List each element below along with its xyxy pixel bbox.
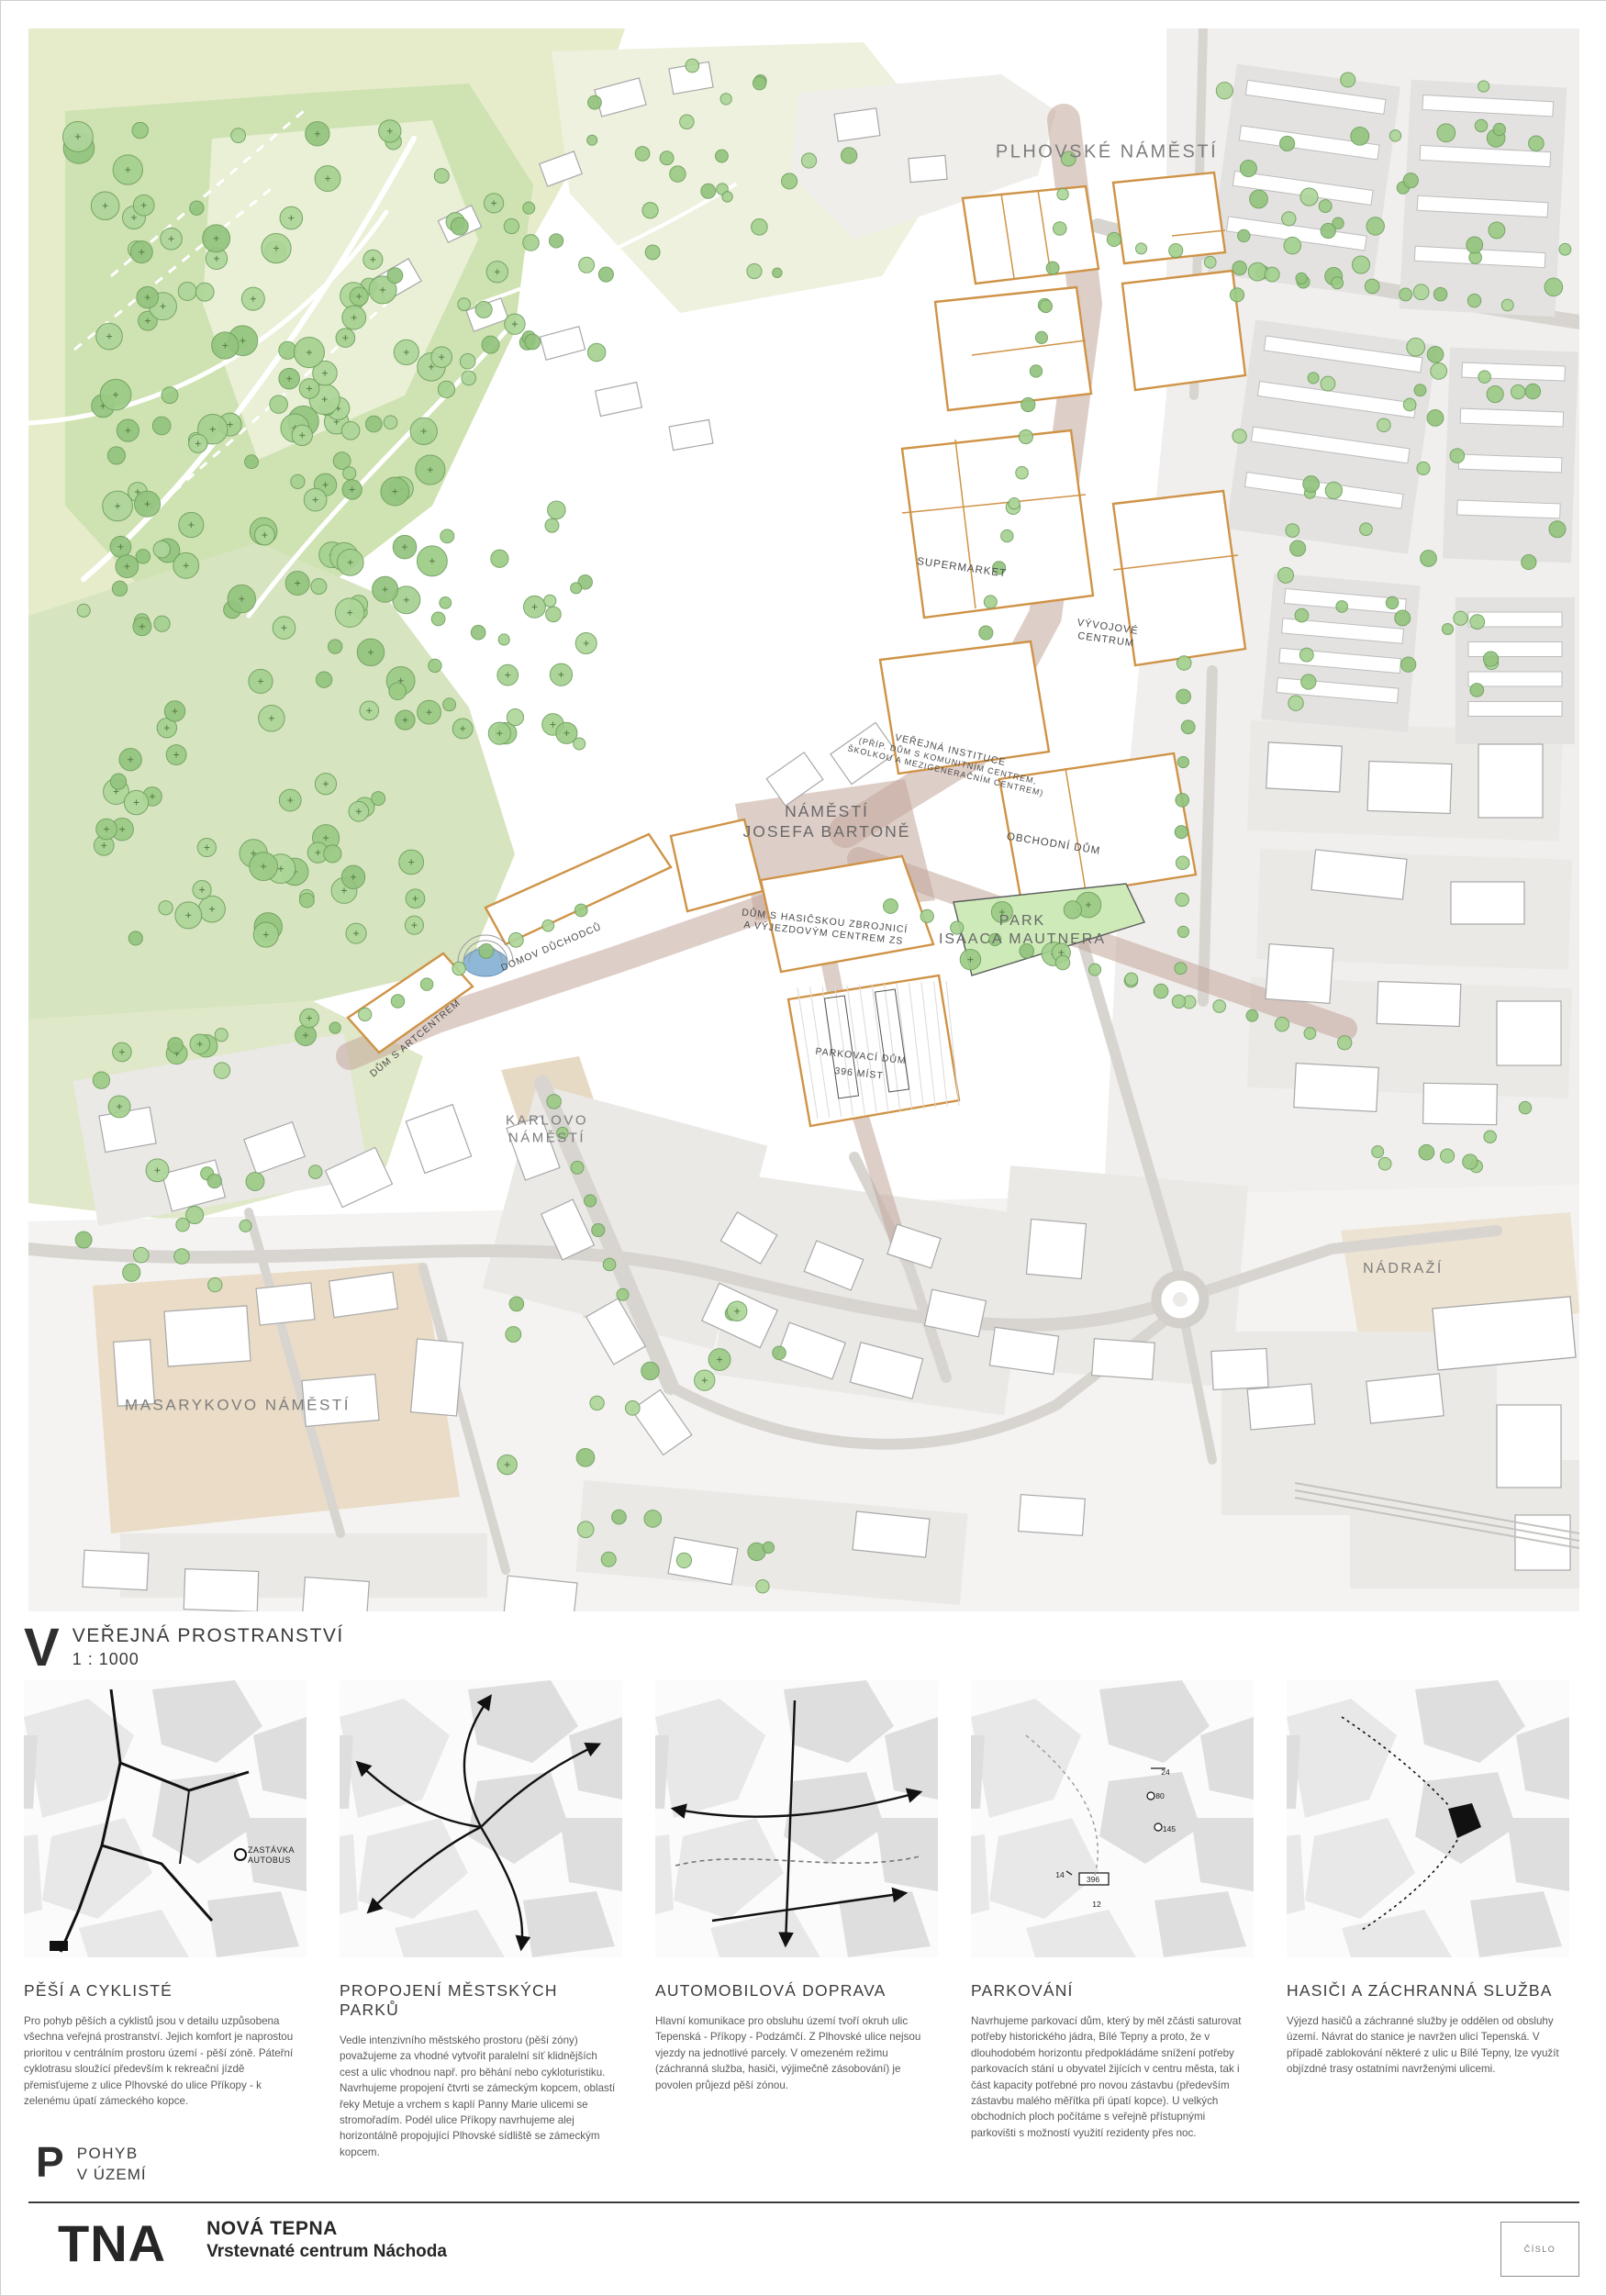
parking-count-24: 24 (1161, 1767, 1169, 1777)
parking-count-396: 396 (1087, 1875, 1099, 1884)
thumbnail-2-svg (340, 1680, 622, 1957)
parking-count-145: 145 (1163, 1824, 1176, 1833)
thumbnail-hasici (1287, 1680, 1569, 1957)
panel-4-body: Navrhujeme parkovací dům, který by měl z… (971, 2013, 1248, 2141)
project-name: NOVÁ TEPNA (206, 2218, 447, 2240)
section-pohyb-v-uzemi: P POHYB V ÚZEMÍ (36, 2145, 147, 2184)
masterplan-map (28, 28, 1579, 1611)
section-p-line2: V ÚZEMÍ (77, 2166, 147, 2184)
panel-parkovani: PARKOVÁNÍ Navrhujeme parkovací dům, kter… (971, 1981, 1248, 2141)
parking-count-14: 14 (1055, 1870, 1064, 1879)
panel-1-heading: PĚŠÍ A CYKLISTÉ (24, 1981, 301, 2001)
panel-5-heading: HASIČI A ZÁCHRANNÁ SLUŽBA (1287, 1981, 1564, 2001)
section-verejna-prostranstvi: V VEŘEJNÁ PROSTRANSTVÍ 1 : 1000 (24, 1625, 344, 1670)
project-subtitle: Vrstevnaté centrum Náchoda (206, 2242, 447, 2262)
section-v-title: VEŘEJNÁ PROSTRANSTVÍ (72, 1625, 344, 1647)
section-v-letter: V (24, 1625, 60, 1670)
panel-4-heading: PARKOVÁNÍ (971, 1981, 1248, 2001)
footer-rule (28, 2201, 1579, 2203)
thumbnail-automobilova-doprava (655, 1680, 938, 1957)
panel-pesi-a-cykliste: PĚŠÍ A CYKLISTÉ Pro pohyb pěších a cykli… (24, 1981, 301, 2109)
panel-2-heading: PROPOJENÍ MĚSTSKÝCH PARKŮ (340, 1981, 617, 2020)
panel-1-body: Pro pohyb pěších a cyklistů jsou v detai… (24, 2013, 301, 2109)
thumbnail-3-svg (655, 1680, 938, 1957)
thumbnail-parkovani: 24 80 145 396 14 12 (971, 1680, 1254, 1957)
poster-page: PLHOVSKÉ NÁMĚSTÍ SUPERMARKET VÝVOJOVÉ CE… (0, 0, 1606, 2296)
section-p-letter: P (36, 2145, 64, 2180)
parking-count-12: 12 (1092, 1900, 1100, 1909)
panel-automobilova-doprava: AUTOMOBILOVÁ DOPRAVA Hlavní komunikace p… (655, 1981, 932, 2093)
project-logo: TNA (58, 2218, 166, 2269)
thumbnail-4-svg (971, 1680, 1254, 1957)
thumbnail-pesi-a-cykliste: ZASTÁVKA AUTOBUS (24, 1680, 307, 1957)
thumbnail-5-svg (1287, 1680, 1569, 1957)
panel-5-body: Výjezd hasičů a záchranné služby je oddě… (1287, 2013, 1564, 2078)
sheet-number-box: ČÍSLO (1500, 2222, 1579, 2277)
parking-count-80: 80 (1155, 1791, 1164, 1800)
thumbnail-1-svg (24, 1680, 307, 1957)
panel-hasici: HASIČI A ZÁCHRANNÁ SLUŽBA Výjezd hasičů … (1287, 1981, 1564, 2078)
panel-3-body: Hlavní komunikace pro obsluhu území tvoř… (655, 2013, 932, 2093)
section-p-line1: POHYB (77, 2145, 147, 2163)
panel-2-body: Vedle intenzivního městského prostoru (p… (340, 2033, 617, 2160)
bus-stop-label: ZASTÁVKA AUTOBUS (248, 1845, 295, 1866)
footer: TNA NOVÁ TEPNA Vrstevnaté centrum Náchod… (58, 2218, 447, 2269)
panel-3-heading: AUTOMOBILOVÁ DOPRAVA (655, 1981, 932, 2001)
masterplan-map-svg (28, 28, 1579, 1611)
section-v-scale: 1 : 1000 (72, 1650, 344, 1669)
thumbnail-propojeni-parku (340, 1680, 622, 1957)
panel-propojeni-parku: PROPOJENÍ MĚSTSKÝCH PARKŮ Vedle intenziv… (340, 1981, 617, 2160)
